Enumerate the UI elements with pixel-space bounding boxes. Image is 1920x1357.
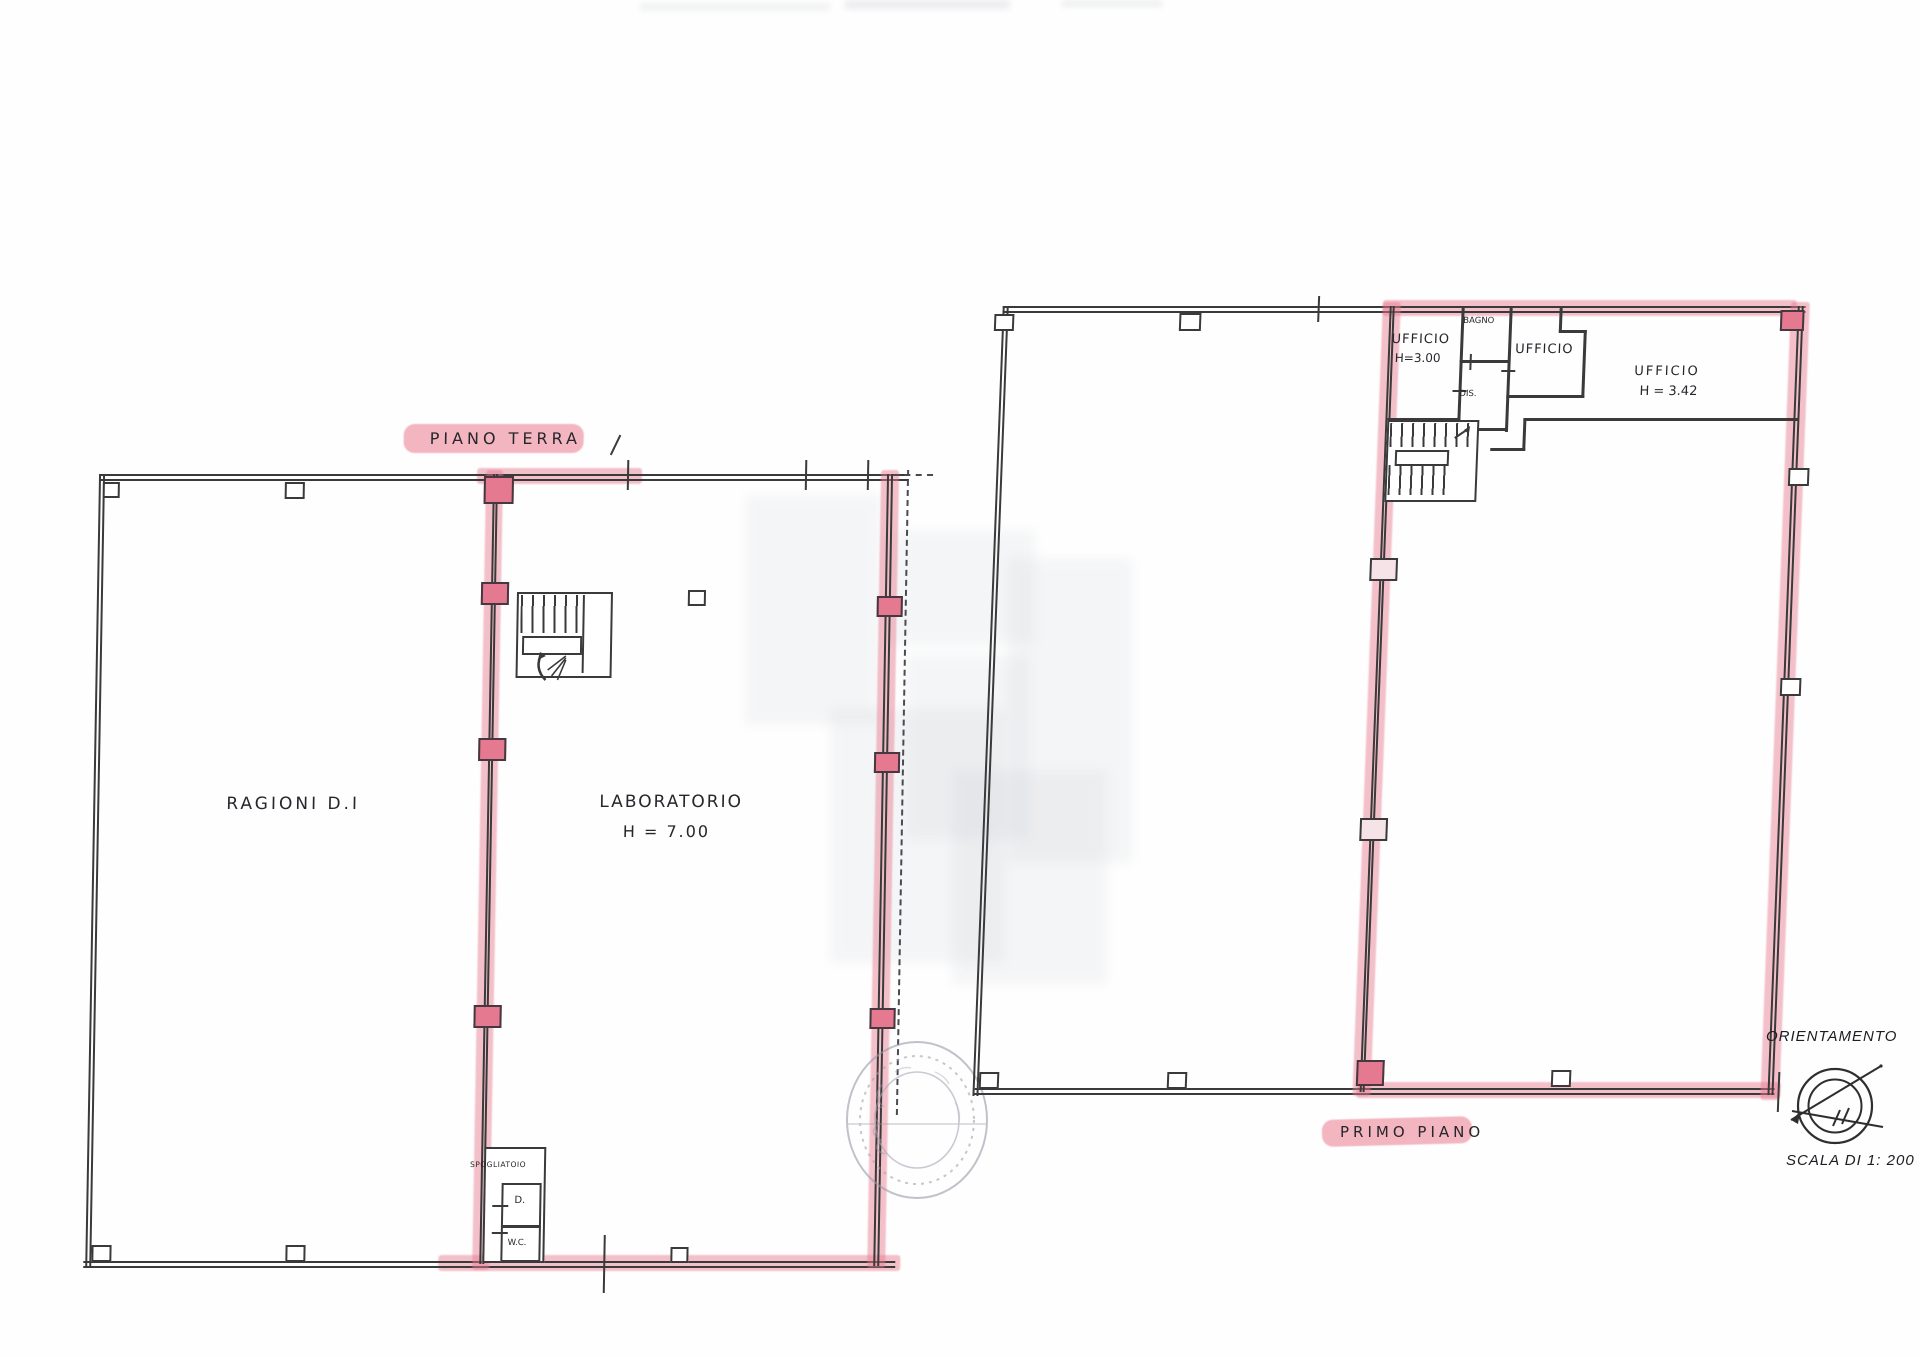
ff-south-wall	[974, 1088, 1774, 1095]
ground-floor-plan: PIANO TERRA	[62, 420, 958, 1330]
door-tick	[1501, 370, 1515, 372]
office-partition	[1460, 360, 1510, 363]
column-mark	[994, 314, 1015, 331]
door-tick	[1469, 354, 1472, 370]
column-mark	[688, 590, 706, 606]
pilaster-mark	[478, 738, 506, 761]
room-label-ragioni: RAGIONI D.I	[226, 794, 360, 814]
column-mark	[979, 1072, 1000, 1089]
room-label-bagno: BAGNO	[1463, 316, 1495, 326]
stair-landing	[1395, 450, 1450, 466]
door-tick	[492, 1205, 508, 1207]
pilaster-mark	[481, 582, 509, 605]
pilaster-mark	[484, 476, 514, 504]
property-boundary-line	[893, 474, 933, 476]
room-label-spogliatoio: SPOGLIATOIO	[470, 1160, 526, 1169]
pilaster-mark	[874, 752, 900, 773]
wall-tick	[805, 460, 808, 490]
room-label-laboratorio: LABORATORIO	[599, 792, 743, 812]
pilaster-mark	[473, 1005, 501, 1028]
orientation-compass-icon	[1788, 1058, 1886, 1153]
column-mark	[1179, 313, 1202, 331]
column-mark	[1788, 468, 1810, 486]
wall-tick	[867, 460, 870, 490]
stair-treads	[520, 595, 585, 633]
room-label-ufficio1: UFFICIO	[1391, 332, 1450, 347]
room-label-ufficio3: UFFICIO	[1634, 364, 1700, 379]
property-boundary-line	[896, 470, 909, 1115]
stray-mark	[610, 435, 621, 456]
column-mark	[1551, 1070, 1572, 1087]
pilaster-mark	[869, 1008, 895, 1029]
room-label-wc: W.C.	[508, 1238, 527, 1248]
pilaster-mark	[877, 596, 903, 617]
ff-north-wall	[1003, 306, 1806, 313]
column-mark	[670, 1247, 688, 1263]
column-mark	[285, 482, 305, 499]
first-floor-title: PRIMO PIANO	[1340, 1123, 1484, 1141]
column-mark	[103, 482, 120, 498]
column-mark	[1780, 678, 1802, 696]
office-partition	[1522, 418, 1526, 451]
stair-treads	[1388, 465, 1453, 495]
scanned-floor-plan-page: PIANO TERRA	[0, 0, 1920, 1357]
scan-smudge	[640, 3, 830, 11]
stair-turn-arrow-icon	[531, 652, 578, 684]
wall-tick	[627, 460, 630, 490]
room-label-d: D.	[514, 1195, 525, 1206]
office-partition	[1490, 448, 1525, 451]
office-partition	[1581, 330, 1587, 398]
pilaster-mark	[1359, 818, 1388, 841]
room-label-dis: DIS.	[1459, 389, 1477, 399]
pilaster-mark	[1369, 558, 1398, 581]
scale-label: SCALA DI 1: 200	[1786, 1152, 1915, 1169]
pilaster-mark	[1780, 310, 1805, 331]
pilaster-mark	[1356, 1060, 1385, 1086]
office-partition	[1506, 395, 1584, 398]
room-height-ufficio1: H=3.00	[1395, 351, 1441, 365]
ground-floor-title: PIANO TERRA	[430, 429, 582, 448]
room-label-ufficio2: UFFICIO	[1515, 342, 1574, 357]
gf-west-wall	[85, 474, 105, 1268]
office-partition	[1559, 330, 1587, 333]
first-floor-plan: UFFICIO H=3.00 BAGNO UFFICIO DIS. UFFICI…	[944, 300, 1825, 1115]
ff-west-wall	[972, 306, 1008, 1096]
column-mark	[1167, 1072, 1188, 1089]
column-mark	[285, 1245, 305, 1262]
column-mark	[91, 1245, 111, 1262]
office-partition	[1559, 308, 1563, 332]
scan-smudge	[845, 0, 1010, 9]
door-tick	[492, 1232, 508, 1234]
orientation-label: ORIENTAMENTO	[1766, 1028, 1897, 1045]
room-height-ufficio3: H = 3.42	[1639, 384, 1697, 399]
office-partition	[1523, 418, 1798, 421]
stair-direction-arrow-icon	[1454, 424, 1475, 440]
scan-smudge	[1062, 0, 1162, 7]
room-height-laboratorio: H = 7.00	[623, 822, 711, 841]
